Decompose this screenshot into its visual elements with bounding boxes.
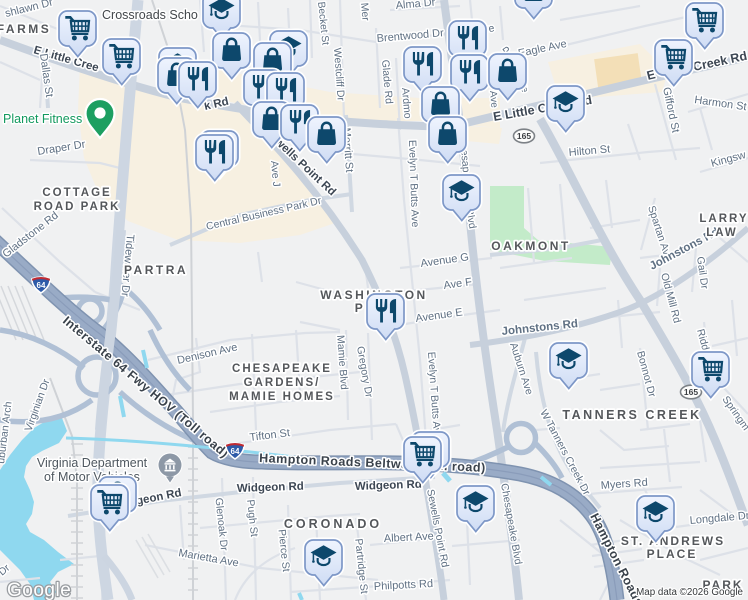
svg-text:LAW: LAW (706, 227, 738, 239)
svg-text:COTTAGE: COTTAGE (42, 187, 111, 199)
svg-text:ST. ANDREWS: ST. ANDREWS (621, 534, 725, 548)
svg-text:PLACE: PLACE (647, 547, 698, 561)
svg-text:OAKMONT: OAKMONT (491, 239, 571, 253)
svg-text:Google: Google (7, 580, 71, 600)
svg-text:FARMS: FARMS (0, 22, 51, 36)
svg-text:Widgeon Rd: Widgeon Rd (355, 479, 422, 493)
svg-text:Ave J: Ave J (268, 160, 282, 187)
svg-text:165: 165 (517, 131, 531, 141)
svg-text:CHESAPEAKE: CHESAPEAKE (232, 363, 332, 375)
svg-text:TANNERS CREEK: TANNERS CREEK (562, 408, 701, 422)
svg-text:Map data ©2026 Google: Map data ©2026 Google (636, 587, 743, 598)
svg-text:ROAD PARK: ROAD PARK (34, 201, 121, 213)
svg-text:Mer: Mer (358, 2, 372, 22)
svg-text:Virginia Department: Virginia Department (37, 456, 148, 470)
svg-text:64: 64 (37, 281, 46, 290)
svg-text:64: 64 (231, 447, 240, 456)
svg-text:Planet Fitness: Planet Fitness (3, 112, 82, 126)
svg-text:P: P (355, 301, 366, 315)
svg-text:MAMIE HOMES: MAMIE HOMES (229, 391, 335, 403)
svg-text:GARDENS/: GARDENS/ (244, 377, 321, 389)
svg-text:LARRY: LARRY (699, 213, 748, 225)
svg-text:CORONADO: CORONADO (284, 517, 382, 531)
svg-text:Ave: Ave (487, 90, 499, 108)
svg-text:Widgeon Rd: Widgeon Rd (237, 481, 304, 495)
svg-text:PARTRA: PARTRA (124, 263, 188, 277)
svg-text:Crossroads Scho: Crossroads Scho (102, 8, 198, 22)
